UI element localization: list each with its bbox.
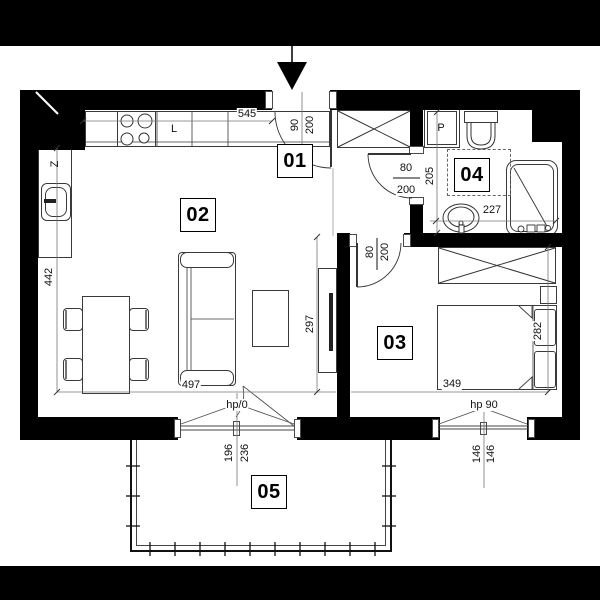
room-number: 04: [460, 164, 483, 187]
dim-balcony-door-sill: hp/0: [225, 399, 248, 411]
floor-plan: 01 02 03 04 05 545 90 200 80 200 205 227…: [0, 0, 600, 600]
dim-living-right-height: 297: [304, 314, 316, 334]
room-label-hall: 01: [277, 144, 313, 178]
plan-linework: [0, 0, 600, 600]
dim-entry-door-w: 90: [289, 118, 301, 132]
dim-bedroom-window-sill: hp 90: [469, 399, 499, 411]
toilet-icon: [467, 123, 495, 149]
dim-bath-door-h: 200: [396, 184, 416, 196]
dim-bedroom-width: 349: [442, 378, 462, 390]
fridge-label: L: [171, 123, 177, 135]
dim-living-width: 497: [181, 379, 201, 391]
room-number: 01: [283, 150, 306, 173]
door-swings: [275, 110, 412, 287]
entrance-arrow-icon: [277, 46, 307, 90]
dim-bath-depth: 205: [424, 166, 436, 186]
dim-balcony-2: 236: [239, 443, 251, 463]
room-number: 03: [383, 332, 406, 355]
washer-label: P: [437, 122, 444, 134]
dim-living-height: 442: [43, 267, 55, 287]
dim-entry-door-h: 200: [304, 115, 316, 135]
room-number: 05: [257, 481, 280, 504]
room-label-balcony: 05: [251, 475, 287, 509]
room-number: 02: [186, 204, 209, 227]
dim-bed-door-w: 80: [364, 245, 376, 259]
dim-bedroom-height: 282: [532, 321, 544, 341]
dim-balcony-1: 196: [223, 443, 235, 463]
dim-bed-door-h: 200: [379, 242, 391, 262]
room-label-bath: 04: [454, 158, 490, 192]
stove-burners-icon: [121, 114, 152, 145]
bath-sink-icon: [443, 204, 479, 233]
room-label-living: 02: [180, 198, 216, 232]
room-label-bedroom: 03: [377, 326, 413, 360]
dim-bath-width: 227: [482, 204, 502, 216]
dim-kitchen-wall: 545: [237, 108, 257, 120]
kitchen-sink-label: Z: [49, 161, 61, 168]
dim-bath-door-w: 80: [399, 162, 413, 174]
dim-window-half-1: 146: [471, 444, 483, 464]
dim-window-half-2: 146: [485, 444, 497, 464]
